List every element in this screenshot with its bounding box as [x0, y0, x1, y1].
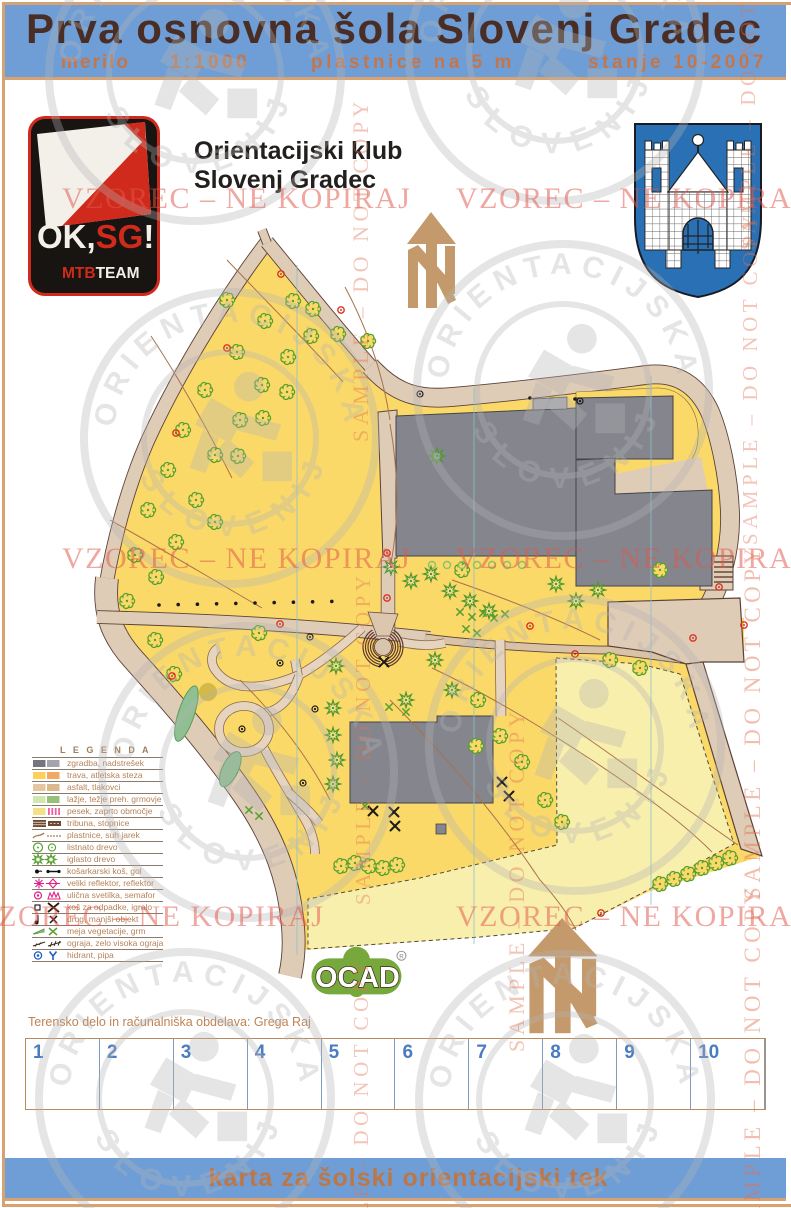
svg-text:OK,SG!: OK,SG!: [37, 218, 154, 255]
svg-text:MTBTEAM: MTBTEAM: [62, 265, 140, 282]
svg-text:OCAD: OCAD: [315, 962, 400, 994]
svg-text:R: R: [399, 953, 404, 960]
